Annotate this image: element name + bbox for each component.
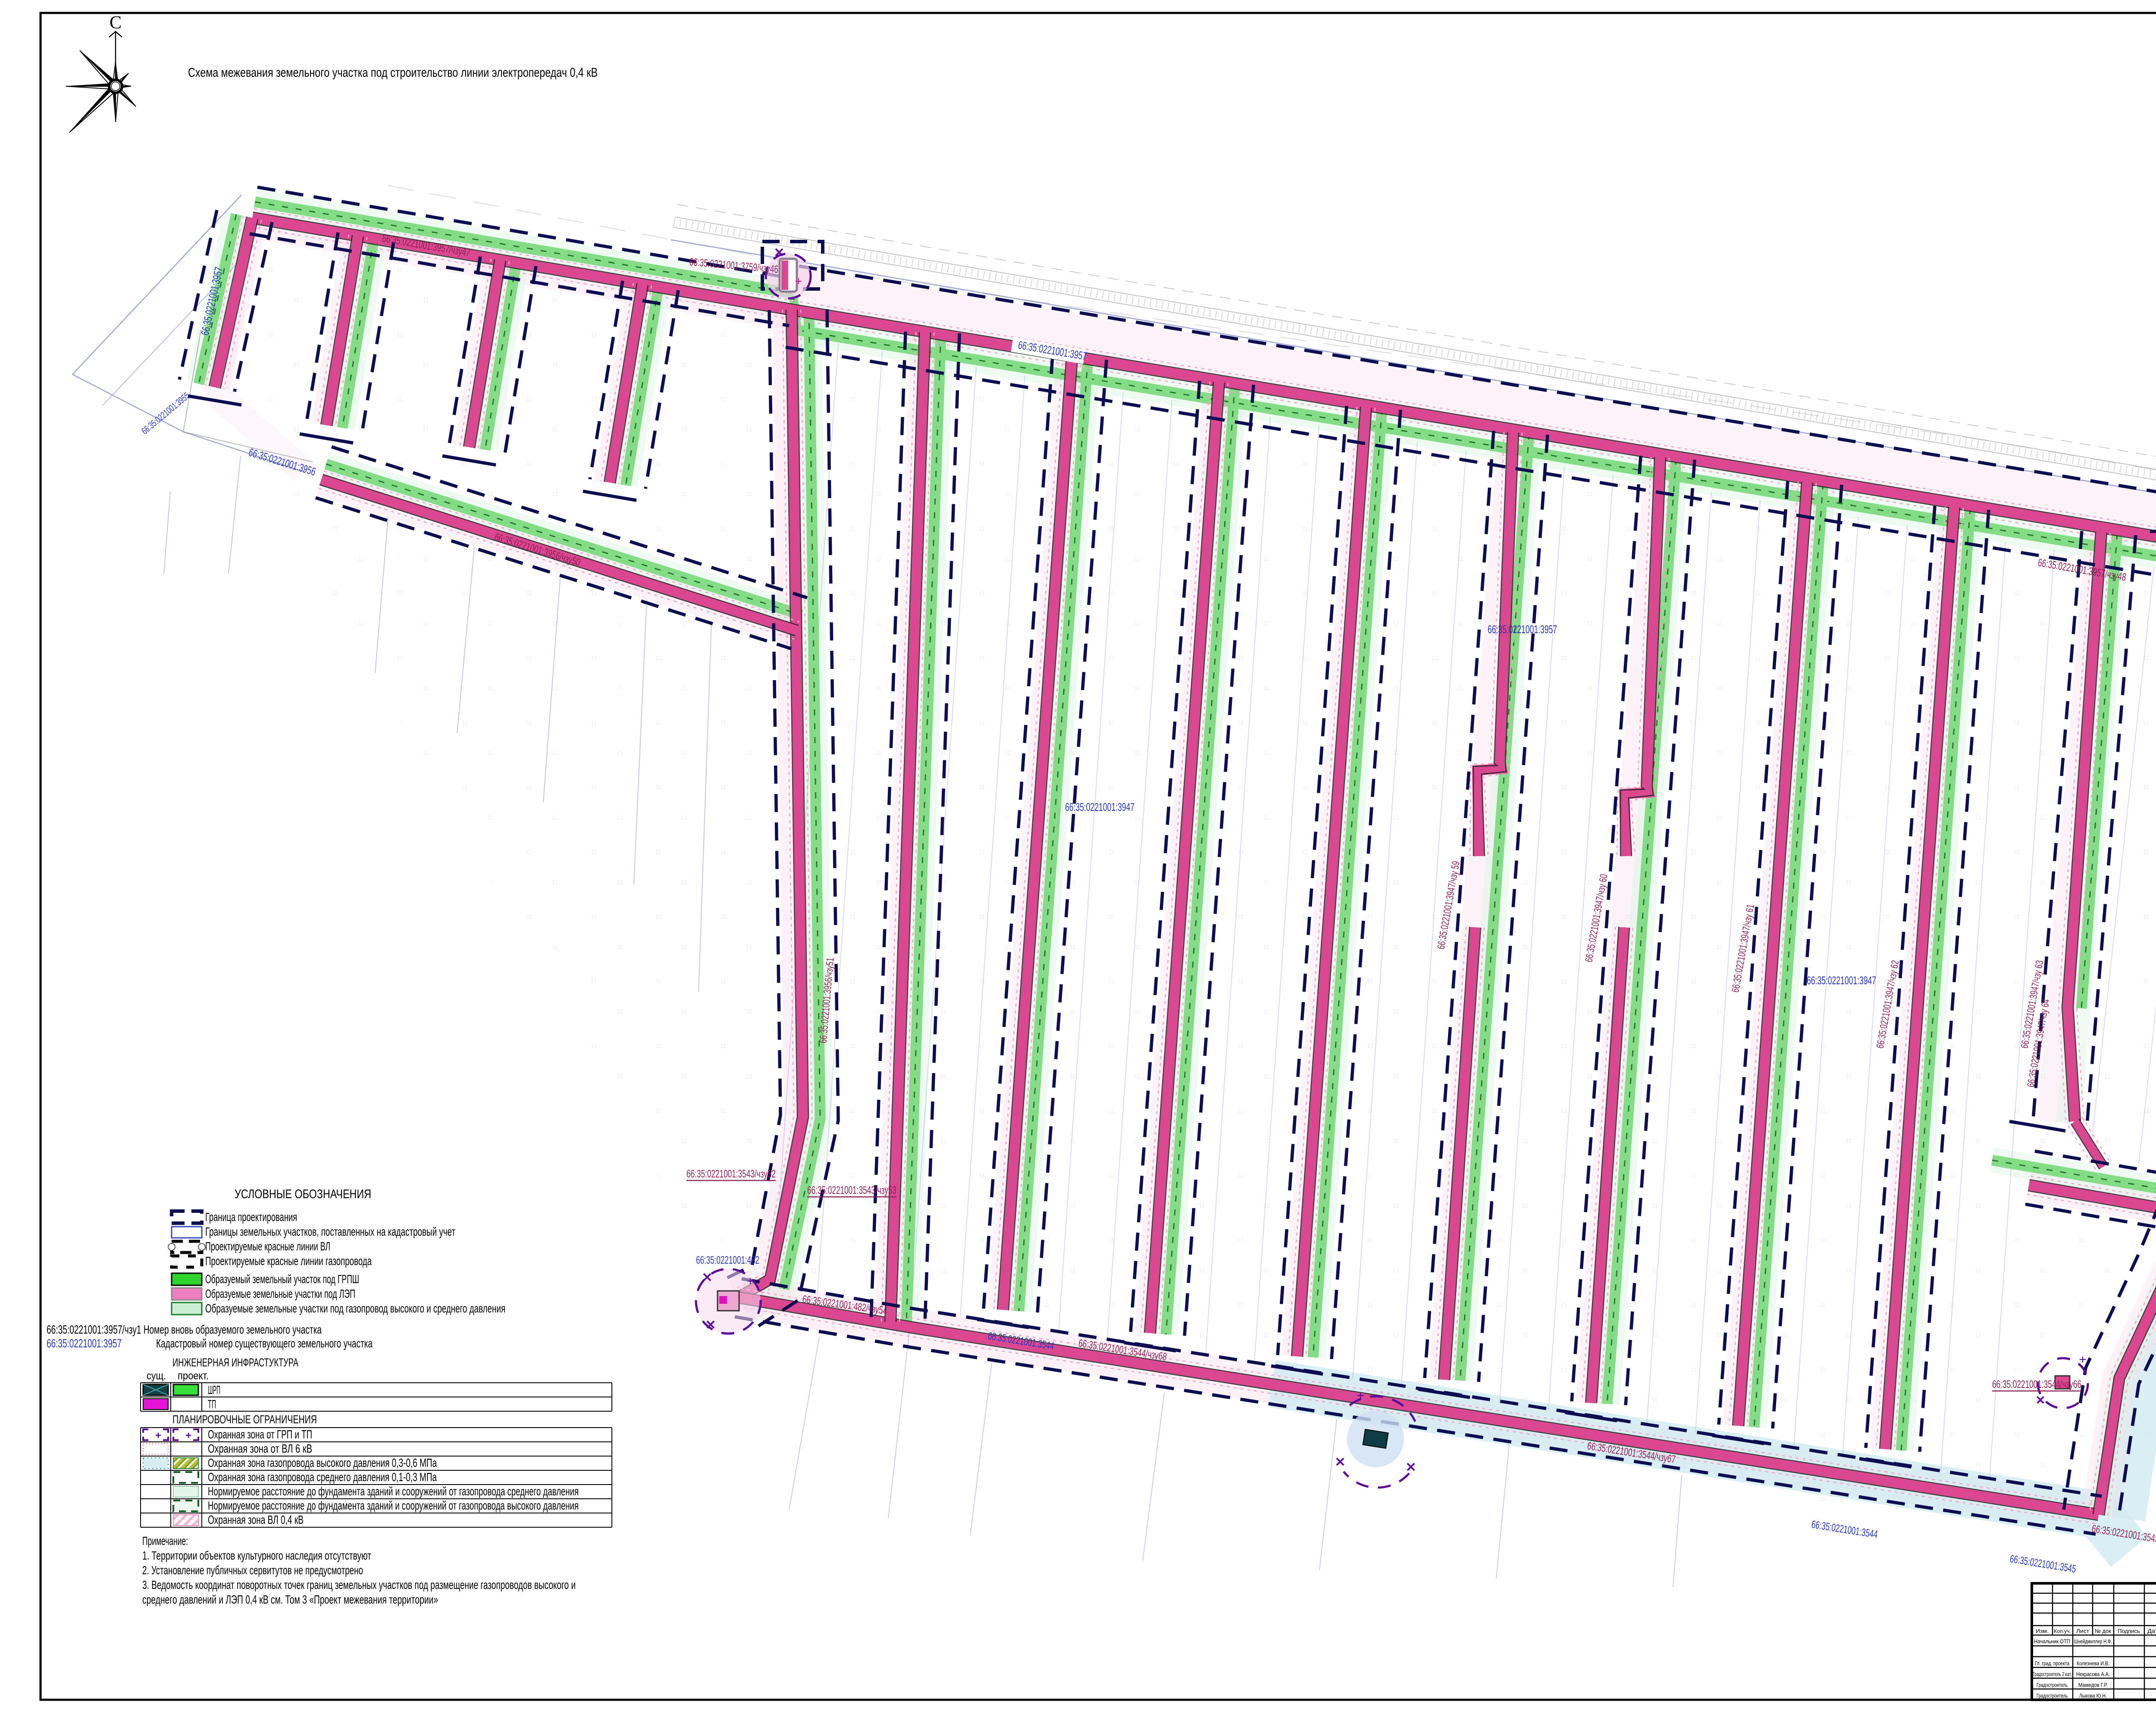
- svg-text:Проектируемые красные линии ВЛ: Проектируемые красные линии ВЛ: [205, 1240, 330, 1253]
- svg-text:+: +: [185, 1430, 191, 1441]
- svg-text:Дата: Дата: [2147, 1628, 2156, 1634]
- svg-text:Нормируемое расстояние до фунд: Нормируемое расстояние до фундамента зда…: [208, 1485, 579, 1498]
- svg-text:+: +: [2079, 1353, 2086, 1367]
- svg-text:✕: ✕: [702, 1271, 712, 1285]
- svg-text:✕: ✕: [1335, 1455, 1345, 1469]
- svg-text:Градостроитель 2 кат.: Градостроитель 2 кат.: [2033, 1671, 2071, 1677]
- svg-text:66:35:0221001:3957: 66:35:0221001:3957: [47, 1337, 122, 1350]
- svg-text:Лыкова Ю.Н.: Лыкова Ю.Н.: [2079, 1693, 2107, 1699]
- svg-text:Проектируемые красные линии г: Проектируемые красные линии газопровода: [205, 1254, 372, 1268]
- svg-text:Градостроитель: Градостроитель: [2037, 1682, 2068, 1688]
- svg-text:Образуемые земельные участки п: Образуемые земельные участки под ЛЭП: [205, 1287, 355, 1300]
- svg-text:Охранная зона газопровода высо: Охранная зона газопровода высокого давле…: [208, 1456, 437, 1469]
- svg-text:ПЛАНИРОВОЧНЫЕ ОГРАНИЧЕНИЯ: ПЛАНИРОВОЧНЫЕ ОГРАНИЧЕНИЯ: [172, 1413, 317, 1426]
- svg-text:Колезнева И.В.: Колезнева И.В.: [2077, 1661, 2109, 1667]
- svg-text:+: +: [746, 1274, 754, 1288]
- svg-text:проект.: проект.: [178, 1370, 209, 1382]
- svg-text:Коп.уч.: Коп.уч.: [2054, 1628, 2071, 1634]
- svg-text:Гл. град. проекта: Гл. град. проекта: [2035, 1660, 2070, 1667]
- svg-text:66:35:0221001:3947: 66:35:0221001:3947: [1807, 974, 1876, 987]
- svg-text:Мамедов Г.Р.: Мамедов Г.Р.: [2078, 1682, 2108, 1688]
- svg-text:сущ.: сущ.: [147, 1370, 166, 1382]
- svg-text:Граница проектирования: Граница проектирования: [205, 1210, 297, 1224]
- svg-text:УСЛОВНЫЕ ОБОЗНАЧЕНИЯ: УСЛОВНЫЕ ОБОЗНАЧЕНИЯ: [235, 1187, 371, 1201]
- svg-text:Образуемые земельные участки п: Образуемые земельные участки под газопро…: [205, 1302, 505, 1315]
- svg-text:ИНЖЕНЕРНАЯ ИНФРАСТУКТУРА: ИНЖЕНЕРНАЯ ИНФРАСТУКТУРА: [172, 1356, 298, 1369]
- svg-text:66:35:0221001:3543/чзу53: 66:35:0221001:3543/чзу53: [807, 1184, 896, 1196]
- svg-text:Охранная зона от ВЛ 6 кВ: Охранная зона от ВЛ 6 кВ: [208, 1442, 312, 1455]
- svg-text:Градостроитель: Градостроитель: [2037, 1692, 2068, 1699]
- svg-text:+: +: [795, 274, 802, 289]
- svg-text:Начальник ОТП: Начальник ОТП: [2034, 1638, 2070, 1645]
- svg-text:Изм.: Изм.: [2036, 1628, 2049, 1634]
- svg-text:+: +: [155, 1430, 161, 1441]
- svg-text:Кадастровый номер существующег: Кадастровый номер существующего земельно…: [156, 1337, 373, 1350]
- svg-text:№ док: № док: [2095, 1628, 2112, 1634]
- svg-text:Охранная зона ВЛ 0,4 кВ: Охранная зона ВЛ 0,4 кВ: [208, 1513, 304, 1526]
- svg-text:Нормируемое расстояние до фунд: Нормируемое расстояние до фундамента зда…: [208, 1499, 579, 1512]
- svg-text:1. Территории объектов культур: 1. Территории объектов культурного насле…: [142, 1549, 371, 1562]
- svg-text:Примечание:: Примечание:: [142, 1534, 188, 1548]
- svg-text:Границы земельных участков, по: Границы земельных участков, поставленных…: [205, 1225, 455, 1238]
- svg-text:✕: ✕: [774, 246, 784, 260]
- svg-text:С: С: [110, 13, 122, 33]
- svg-text:Образуемый земельный участок п: Образуемый земельный участок под ГРПШ: [205, 1272, 359, 1286]
- svg-text:ШРП: ШРП: [208, 1383, 220, 1397]
- svg-text:2. Установление публичных серв: 2. Установление публичных сервитутов не …: [142, 1563, 363, 1577]
- svg-text:66:35:0221001:3957/чзу1 Номер: 66:35:0221001:3957/чзу1 Номер вновь обра…: [47, 1323, 322, 1336]
- svg-text:✕: ✕: [2035, 1394, 2045, 1407]
- svg-text:66:35:0221001:3947: 66:35:0221001:3947: [1065, 800, 1134, 813]
- svg-text:+: +: [1357, 1388, 1364, 1403]
- svg-text:66:35:0221001:3544/чзу66: 66:35:0221001:3544/чзу66: [1992, 1378, 2081, 1391]
- svg-text:66:35:0221001:482: 66:35:0221001:482: [696, 1254, 759, 1266]
- svg-text:Охранная зона газопровода сред: Охранная зона газопровода среднего давле…: [208, 1470, 437, 1484]
- svg-text:3. Ведомость координат поворот: 3. Ведомость координат поворотных точек …: [142, 1578, 576, 1592]
- svg-text:66:35:0221001:3543/чзу52: 66:35:0221001:3543/чзу52: [686, 1168, 776, 1180]
- svg-text:Некрасова А.А.: Некрасова А.А.: [2076, 1671, 2110, 1677]
- svg-text:Лист: Лист: [2076, 1628, 2089, 1634]
- svg-text:Подпись: Подпись: [2118, 1628, 2140, 1634]
- svg-text:ТП: ТП: [208, 1397, 216, 1411]
- svg-text:Охранная зона от ГРП и ТП: Охранная зона от ГРП и ТП: [208, 1428, 312, 1441]
- svg-text:66:35:0221001:3957: 66:35:0221001:3957: [1488, 623, 1557, 636]
- svg-text:✕: ✕: [1405, 1460, 1416, 1475]
- svg-text:Схема межевания земельного уча: Схема межевания земельного участка под с…: [188, 66, 598, 80]
- svg-text:✕: ✕: [705, 1318, 716, 1332]
- svg-text:Шнейдмиллер Н.Ф.: Шнейдмиллер Н.Ф.: [2074, 1639, 2112, 1645]
- svg-text:среднего давлений и ЛЭП 0,4 кВ: среднего давлений и ЛЭП 0,4 кВ см. Том 3…: [142, 1593, 438, 1606]
